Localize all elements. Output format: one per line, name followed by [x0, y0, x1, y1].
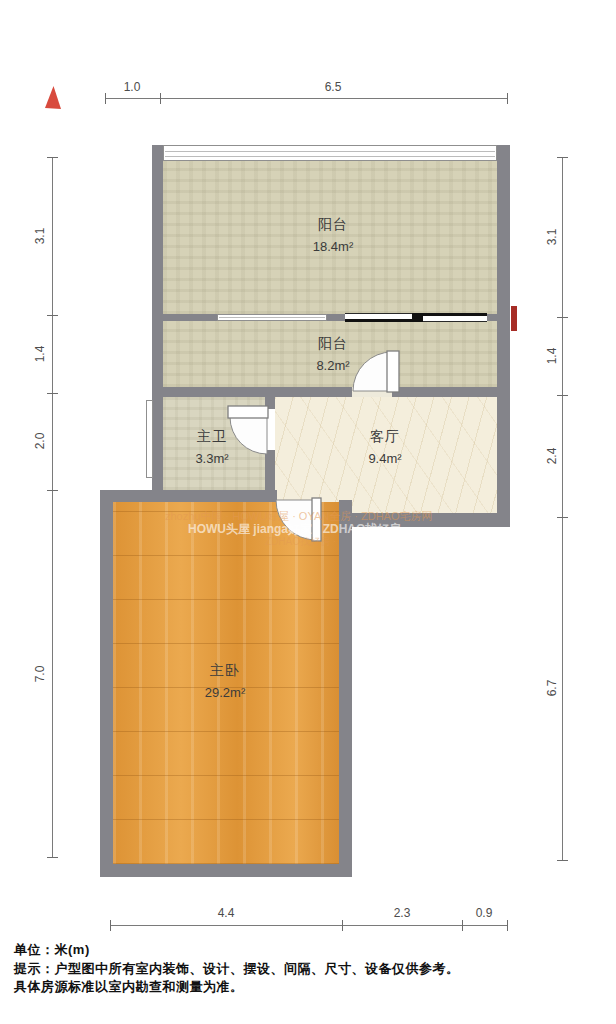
dim-line-bottom: [110, 925, 507, 926]
wall-living-bottom: [342, 513, 510, 527]
room-area: 29.2m²: [170, 685, 280, 700]
room-label-bathroom: 主卫 3.3m²: [157, 428, 267, 466]
dim-value-right: 6.7: [545, 668, 559, 708]
room-label-bedroom: 主卧 29.2m²: [170, 662, 280, 700]
dim-tick: [462, 920, 463, 931]
dim-tick: [507, 920, 508, 931]
dim-tick: [557, 157, 568, 158]
floorplan-canvas: 阳台 18.4m² 阳台 8.2m² 主卫 3.3m² 客厅 9.4m² 主卧 …: [0, 0, 616, 1024]
sliding-door-panel: [423, 313, 487, 322]
window-glass-line: [219, 317, 325, 318]
sliding-door-frame: [412, 313, 423, 322]
entry-door-mark: [511, 306, 517, 331]
room-label-living: 客厅 9.4m²: [330, 428, 440, 466]
dim-value-left: 7.0: [33, 654, 47, 694]
dim-tick: [47, 393, 58, 394]
room-label-balcony-mid: 阳台 8.2m²: [278, 335, 388, 373]
room-name: 阳台: [278, 335, 388, 353]
dim-line-left: [52, 157, 53, 858]
room-name: 客厅: [330, 428, 440, 446]
balcony-top-window: [163, 145, 497, 161]
dim-value-left: 3.1: [33, 216, 47, 256]
dim-tick: [160, 93, 161, 104]
dim-value-bottom: 4.4: [206, 906, 246, 920]
footer-disclaimer-1: 提示：户型图中所有室内装饰、设计、摆设、间隔、尺寸、设备仅供参考。: [14, 960, 460, 978]
wall-bedroom-left: [100, 490, 113, 877]
balcony-mid-window: [217, 314, 327, 321]
sliding-door-panel: [345, 313, 412, 322]
room-area: 3.3m²: [157, 451, 267, 466]
wall-right: [497, 145, 510, 527]
dim-tick: [47, 315, 58, 316]
door-bedroom: [270, 492, 326, 547]
dim-value-right: 1.4: [545, 336, 559, 376]
dim-value-right: 2.4: [545, 436, 559, 476]
dim-value-bottom: 2.3: [382, 906, 422, 920]
wall-balcony-living: [152, 387, 510, 397]
window-glass-line: [165, 156, 495, 157]
dim-line-top: [105, 98, 507, 99]
dim-tick: [342, 920, 343, 931]
bathroom-side-window: [146, 400, 153, 478]
dim-tick: [507, 93, 508, 104]
window-glass-line: [165, 151, 495, 152]
wall-bedroom-bottom: [100, 864, 352, 877]
dim-line-right: [562, 157, 563, 860]
dim-value-left: 2.0: [33, 421, 47, 461]
room-name: 主卫: [157, 428, 267, 446]
wall-bedroom-right: [339, 500, 352, 877]
north-arrow-icon: [44, 86, 62, 111]
dim-tick: [110, 920, 111, 931]
room-name: 主卧: [170, 662, 280, 680]
dim-tick: [557, 395, 568, 396]
room-area: 8.2m²: [278, 358, 388, 373]
dim-value-top: 6.5: [313, 80, 353, 94]
dim-tick: [47, 157, 58, 158]
room-area: 9.4m²: [330, 451, 440, 466]
room-label-balcony-top: 阳台 18.4m²: [278, 216, 388, 254]
dim-tick: [47, 857, 58, 858]
dim-value-top: 1.0: [112, 80, 152, 94]
room-name: 阳台: [278, 216, 388, 234]
dim-tick: [557, 517, 568, 518]
dim-tick: [557, 317, 568, 318]
dim-tick: [105, 93, 106, 104]
wall-bedroom-top: [100, 490, 277, 502]
dim-tick: [47, 490, 58, 491]
dim-value-left: 1.4: [33, 334, 47, 374]
dim-tick: [557, 860, 568, 861]
footer-unit-note: 单位：米(m): [14, 941, 90, 959]
dim-value-bottom: 0.9: [464, 906, 504, 920]
room-area: 18.4m²: [278, 239, 388, 254]
dim-value-right: 3.1: [545, 217, 559, 257]
footer-disclaimer-2: 具体房源标准以室内勘查和测量为准。: [14, 978, 244, 996]
